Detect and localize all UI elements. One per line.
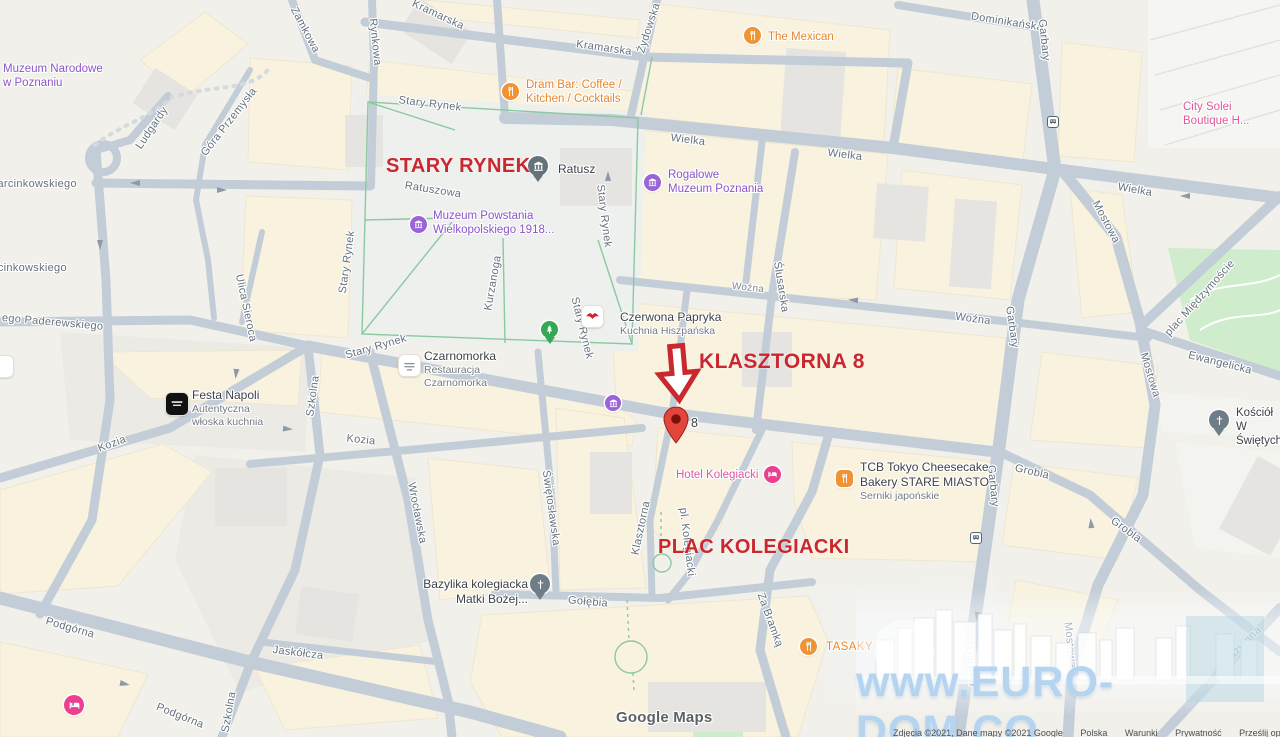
arrow-annotation-icon: [652, 342, 704, 404]
poi-label-city-solei[interactable]: City Solei Boutique H...: [1183, 100, 1280, 128]
poi-label-muzeum-narodowe[interactable]: Muzeum Narodowe w Poznaniu: [3, 62, 103, 90]
poi-label-ratusz[interactable]: Ratusz: [558, 162, 595, 177]
czarnomorka-logo-icon[interactable]: [399, 355, 420, 376]
museum-icon[interactable]: [410, 216, 427, 233]
pin-house-number: 8: [691, 416, 698, 430]
attribution-link-prywatnosc[interactable]: Prywatność: [1175, 728, 1222, 737]
poi-label-rogalowe-muzeum[interactable]: Rogalowe Muzeum Poznania: [668, 168, 763, 196]
poi-logo-icon[interactable]: [0, 356, 13, 377]
poi-label-muzeum-powstania[interactable]: Muzeum Powstania Wielkopolskiego 1918...: [433, 209, 554, 237]
google-maps-canvas[interactable]: Kramarska Kramarska Zamkowa Rynkowa Żydo…: [0, 0, 1280, 737]
townhall-icon[interactable]: [528, 156, 548, 176]
street-label-marcinkowskiego: Marcinkowskiego: [0, 262, 67, 274]
czerwona-papryka-logo-icon[interactable]: [582, 306, 603, 327]
bus-stop-icon[interactable]: [1047, 116, 1059, 128]
poi-label-the-mexican[interactable]: The Mexican: [768, 30, 834, 44]
restaurant-icon[interactable]: [744, 27, 761, 44]
poi-sublabel-czerwona-papryka: Kuchnia Hiszpańska: [620, 325, 715, 338]
watermark-text: www.EURO-DOM.CO: [856, 658, 1280, 737]
attribution-link-polska[interactable]: Polska: [1080, 728, 1107, 737]
google-maps-logo[interactable]: Google Maps: [616, 709, 712, 726]
museum-icon[interactable]: [605, 395, 621, 411]
poi-label-festa-napoli[interactable]: Festa Napoli: [192, 388, 259, 403]
hotel-icon[interactable]: [764, 466, 781, 483]
poi-label-czerwona-papryka[interactable]: Czerwona Papryka: [620, 310, 721, 325]
restaurant-icon[interactable]: [502, 83, 519, 100]
poi-label-hotel-kolegiacki[interactable]: Hotel Kolegiacki: [676, 468, 758, 482]
attribution-bar: Zdjęcia ©2021, Dane mapy ©2021 Google Po…: [893, 728, 1280, 737]
poi-label-tcb-tokyo[interactable]: TCB Tokyo Cheesecake Bakery STARE MIASTO: [860, 460, 989, 489]
poi-label-bazylika[interactable]: Bazylika kolegiacka Matki Bożej...: [398, 577, 528, 606]
poi-label-dram-bar[interactable]: Dram Bar: Coffee / Kitchen / Cocktails: [526, 78, 622, 106]
restaurant-icon[interactable]: [800, 638, 817, 655]
poi-sublabel-festa-napoli: Autentyczna włoska kuchnia: [192, 403, 263, 429]
museum-icon[interactable]: [644, 174, 661, 191]
street-label-marcinkowskiego: Marcinkowskiego: [0, 178, 77, 190]
bakery-icon[interactable]: [836, 470, 853, 487]
attribution-copyright: Zdjęcia ©2021, Dane mapy ©2021 Google: [893, 728, 1063, 737]
tree-icon[interactable]: [541, 321, 558, 338]
attribution-link-warunki[interactable]: Warunki: [1125, 728, 1158, 737]
festa-napoli-logo-icon[interactable]: [166, 393, 188, 415]
annotation-klasztorna-8: KLASZTORNA 8: [699, 350, 865, 374]
church-icon[interactable]: [530, 574, 550, 594]
poi-sublabel-tcb-tokyo: Serniki japońskie: [860, 490, 939, 503]
poi-label-kosciol[interactable]: Kościół W Świętych: [1236, 406, 1280, 448]
hotel-icon[interactable]: [64, 695, 84, 715]
poi-label-czarnomorka[interactable]: Czarnomorka: [424, 349, 496, 364]
annotation-plac-kolegiacki: PLAC KOLEGIACKI: [658, 536, 850, 559]
annotation-stary-rynek: STARY RYNEK: [386, 155, 530, 178]
poi-sublabel-czarnomorka: Restauracja Czarnomorka: [424, 364, 487, 390]
bus-stop-icon[interactable]: [970, 532, 982, 544]
church-icon[interactable]: [1209, 410, 1229, 430]
destination-pin-icon: [660, 406, 692, 444]
attribution-link-przeslij-opinie[interactable]: Prześlij opinię o produkcie: [1239, 728, 1280, 737]
